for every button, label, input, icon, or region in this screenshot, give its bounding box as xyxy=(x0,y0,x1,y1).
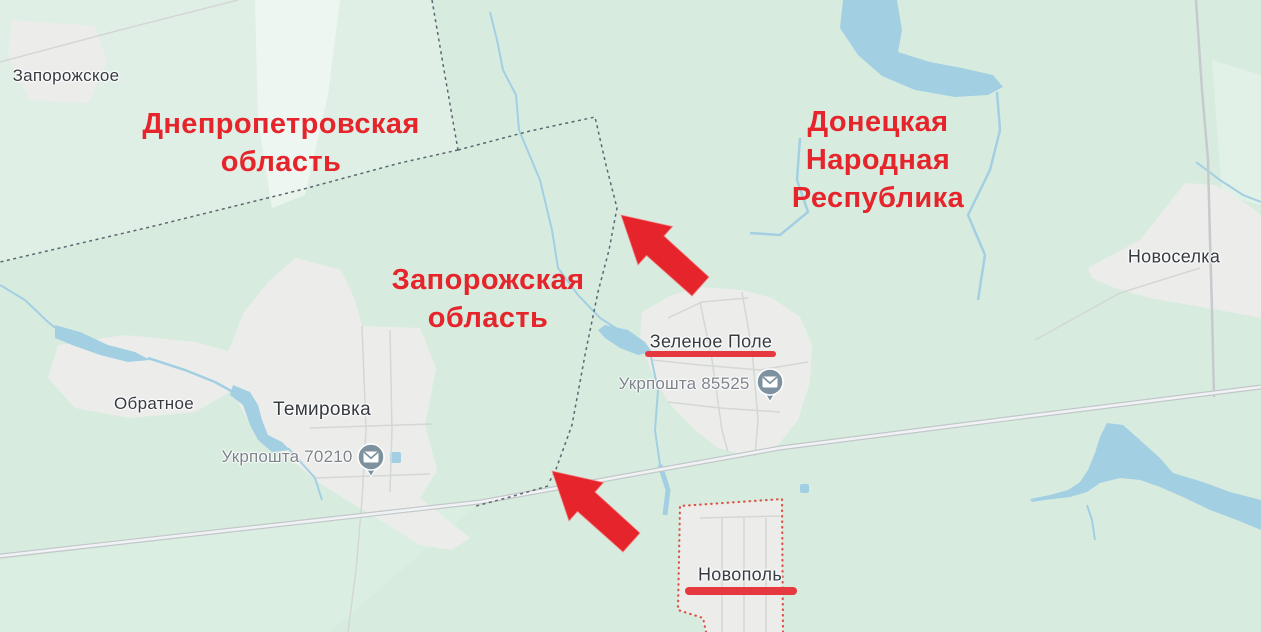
poi-label-ukrposhta-85525: Укрпошта 85525 xyxy=(618,374,749,394)
region-label-donetsk-peoples-republic: Донецкая Народная Республика xyxy=(792,103,964,217)
region-label-zaporizhzhia-oblast: Запорожская область xyxy=(392,261,585,337)
stream xyxy=(0,285,58,330)
map-base-layer xyxy=(0,0,1261,632)
place-label-obratnoye: Обратное xyxy=(114,394,194,414)
stream xyxy=(660,465,668,515)
terrain-patch xyxy=(1212,60,1261,205)
poi-label-ukrposhta-70210: Укрпошта 70210 xyxy=(221,447,352,467)
envelope-pin-icon[interactable] xyxy=(354,440,388,480)
pond xyxy=(800,484,809,493)
stream xyxy=(968,92,1000,300)
envelope-pin-icon[interactable] xyxy=(753,365,787,405)
place-label-zelenoye-pole: Зеленое Поле xyxy=(650,332,772,353)
place-label-novoselka: Новоселка xyxy=(1128,247,1220,268)
stream xyxy=(1087,505,1095,540)
place-label-temirovka: Темировка xyxy=(273,399,371,421)
river xyxy=(1030,423,1261,530)
arrow-annotation-border-tripoint xyxy=(621,215,709,296)
region-label-dnipropetrovsk-oblast: Днепропетровская область xyxy=(142,105,419,181)
red-underline-annotation xyxy=(685,587,797,595)
map-canvas[interactable]: Запорожское Новоселка Обратное Темировка… xyxy=(0,0,1261,632)
place-label-novopol: Новополь xyxy=(698,565,782,586)
lake xyxy=(840,0,1003,97)
arrow-annotation-road-crossing xyxy=(552,471,640,552)
place-label-zaporozhskoye: Запорожское xyxy=(13,66,120,86)
